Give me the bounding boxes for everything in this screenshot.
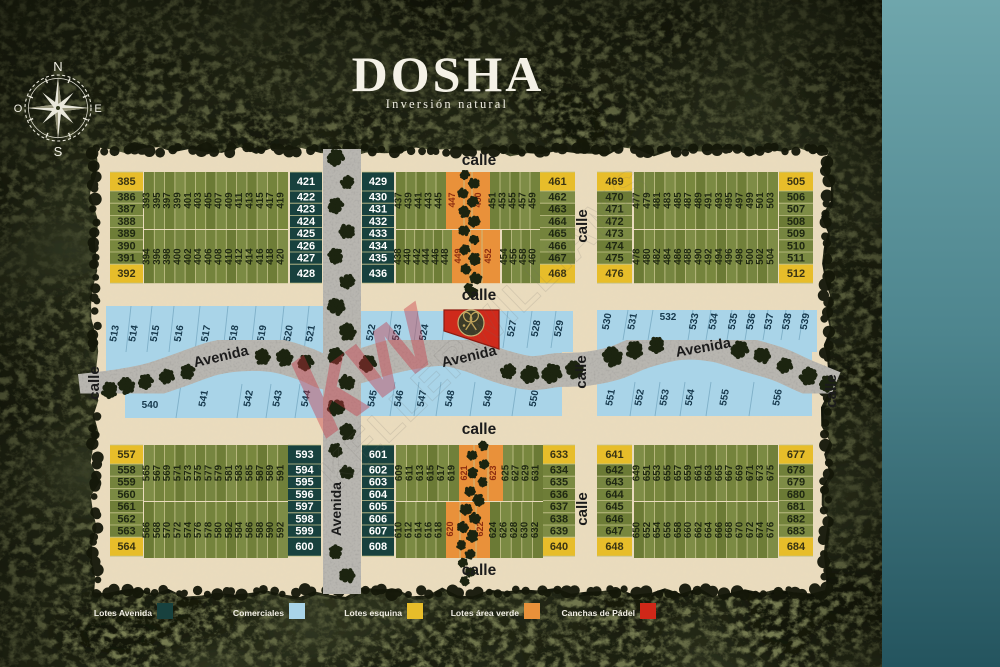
svg-text:392: 392	[117, 268, 135, 280]
svg-text:647: 647	[605, 526, 623, 538]
svg-text:684: 684	[787, 541, 806, 553]
svg-text:600: 600	[295, 541, 313, 553]
svg-text:Lotes área verde: Lotes área verde	[451, 608, 520, 618]
svg-text:391: 391	[117, 253, 135, 265]
svg-text:431: 431	[369, 204, 387, 216]
svg-text:508: 508	[787, 216, 805, 228]
svg-text:calle: calle	[823, 374, 840, 407]
svg-text:463: 463	[548, 204, 566, 216]
svg-text:389: 389	[117, 228, 135, 240]
svg-text:423: 423	[297, 204, 315, 216]
svg-text:387: 387	[117, 204, 135, 216]
svg-text:Lotes Avenida: Lotes Avenida	[94, 608, 152, 618]
svg-text:559: 559	[117, 477, 135, 489]
svg-text:O: O	[14, 103, 23, 115]
svg-text:Comerciales: Comerciales	[233, 608, 284, 618]
svg-text:DOSHA: DOSHA	[352, 46, 545, 102]
svg-text:511: 511	[787, 253, 805, 265]
svg-text:421: 421	[297, 176, 315, 188]
svg-text:594: 594	[295, 465, 314, 477]
svg-text:calle: calle	[573, 355, 590, 388]
svg-text:631: 631	[531, 464, 542, 481]
svg-text:429: 429	[369, 176, 387, 188]
svg-text:682: 682	[787, 513, 805, 525]
svg-text:422: 422	[297, 192, 315, 204]
svg-text:557: 557	[117, 449, 135, 461]
svg-text:434: 434	[369, 240, 388, 252]
svg-text:609: 609	[394, 464, 405, 481]
svg-text:677: 677	[787, 449, 805, 461]
svg-text:623: 623	[488, 465, 498, 480]
svg-text:564: 564	[117, 541, 136, 553]
svg-text:613: 613	[415, 464, 426, 481]
svg-text:calle: calle	[86, 366, 103, 399]
svg-text:678: 678	[787, 465, 805, 477]
svg-text:630: 630	[520, 521, 531, 538]
svg-text:445: 445	[434, 192, 445, 209]
svg-text:calle: calle	[462, 562, 497, 579]
svg-text:462: 462	[548, 192, 566, 204]
svg-text:385: 385	[117, 176, 135, 188]
svg-text:Lotes esquina: Lotes esquina	[344, 608, 402, 618]
svg-text:532: 532	[660, 312, 677, 323]
svg-text:676: 676	[765, 521, 776, 538]
svg-text:459: 459	[528, 192, 539, 209]
svg-text:432: 432	[369, 216, 387, 228]
svg-text:509: 509	[787, 228, 805, 240]
svg-text:635: 635	[550, 477, 568, 489]
svg-text:644: 644	[605, 489, 624, 501]
svg-text:calle: calle	[574, 492, 591, 525]
svg-text:608: 608	[369, 541, 387, 553]
svg-text:452: 452	[483, 248, 493, 263]
svg-text:562: 562	[117, 513, 135, 525]
svg-text:E: E	[94, 103, 101, 115]
svg-text:420: 420	[275, 248, 286, 265]
svg-text:640: 640	[550, 541, 568, 553]
svg-text:596: 596	[295, 489, 313, 501]
svg-text:643: 643	[605, 477, 623, 489]
svg-text:681: 681	[787, 501, 805, 513]
svg-text:506: 506	[787, 192, 805, 204]
svg-text:426: 426	[297, 240, 315, 252]
svg-text:638: 638	[550, 513, 568, 525]
svg-text:603: 603	[369, 477, 387, 489]
svg-text:561: 561	[117, 501, 135, 513]
svg-text:645: 645	[605, 501, 623, 513]
svg-text:634: 634	[550, 465, 569, 477]
svg-text:646: 646	[605, 513, 623, 525]
svg-text:504: 504	[765, 248, 776, 265]
svg-text:675: 675	[765, 464, 776, 481]
svg-text:632: 632	[530, 521, 541, 538]
svg-text:628: 628	[509, 521, 520, 538]
svg-text:621: 621	[459, 465, 469, 480]
svg-text:620: 620	[445, 521, 455, 536]
svg-text:386: 386	[117, 192, 135, 204]
svg-text:390: 390	[117, 240, 135, 252]
svg-text:606: 606	[369, 513, 387, 525]
svg-text:calle: calle	[462, 421, 497, 438]
svg-text:503: 503	[765, 192, 776, 209]
svg-text:424: 424	[297, 216, 316, 228]
svg-text:639: 639	[550, 526, 568, 538]
svg-text:642: 642	[605, 465, 623, 477]
svg-text:641: 641	[605, 449, 623, 461]
svg-text:595: 595	[295, 477, 313, 489]
svg-text:598: 598	[295, 513, 313, 525]
svg-text:560: 560	[117, 489, 135, 501]
svg-text:461: 461	[548, 176, 566, 188]
svg-text:605: 605	[369, 501, 387, 513]
svg-text:626: 626	[498, 521, 509, 538]
svg-text:563: 563	[117, 526, 135, 538]
svg-text:680: 680	[787, 489, 805, 501]
svg-text:447: 447	[447, 192, 457, 207]
svg-text:507: 507	[787, 204, 805, 216]
svg-text:611: 611	[404, 465, 415, 481]
svg-text:512: 512	[787, 268, 805, 280]
svg-text:624: 624	[488, 521, 499, 538]
svg-text:648: 648	[605, 541, 623, 553]
svg-text:510: 510	[787, 240, 805, 252]
svg-text:N: N	[53, 59, 62, 74]
svg-text:637: 637	[550, 501, 568, 513]
svg-text:683: 683	[787, 526, 805, 538]
svg-text:607: 607	[369, 526, 387, 538]
svg-text:calle: calle	[462, 152, 497, 169]
svg-text:505: 505	[787, 176, 805, 188]
svg-text:636: 636	[550, 489, 568, 501]
svg-text:604: 604	[369, 489, 388, 501]
svg-text:425: 425	[297, 228, 315, 240]
svg-text:475: 475	[605, 253, 623, 265]
svg-text:591: 591	[275, 464, 286, 481]
svg-text:419: 419	[275, 192, 286, 209]
svg-text:592: 592	[275, 521, 286, 538]
svg-text:617: 617	[436, 464, 447, 481]
svg-text:618: 618	[434, 521, 445, 538]
svg-text:388: 388	[117, 216, 135, 228]
svg-text:Canchas de Pádel: Canchas de Pádel	[561, 608, 635, 618]
svg-text:476: 476	[605, 268, 623, 280]
svg-text:597: 597	[295, 501, 313, 513]
svg-text:433: 433	[369, 228, 387, 240]
svg-text:540: 540	[142, 400, 159, 411]
svg-text:S: S	[54, 144, 63, 159]
svg-text:428: 428	[297, 268, 315, 280]
svg-text:633: 633	[550, 449, 568, 461]
svg-text:Inversión natural: Inversión natural	[386, 97, 508, 111]
svg-text:448: 448	[440, 248, 451, 265]
svg-text:558: 558	[117, 465, 135, 477]
svg-text:435: 435	[369, 253, 387, 265]
svg-text:619: 619	[446, 464, 457, 481]
svg-text:679: 679	[787, 477, 805, 489]
svg-text:599: 599	[295, 526, 313, 538]
svg-text:427: 427	[297, 253, 315, 265]
svg-text:430: 430	[369, 192, 387, 204]
svg-text:615: 615	[425, 464, 436, 481]
